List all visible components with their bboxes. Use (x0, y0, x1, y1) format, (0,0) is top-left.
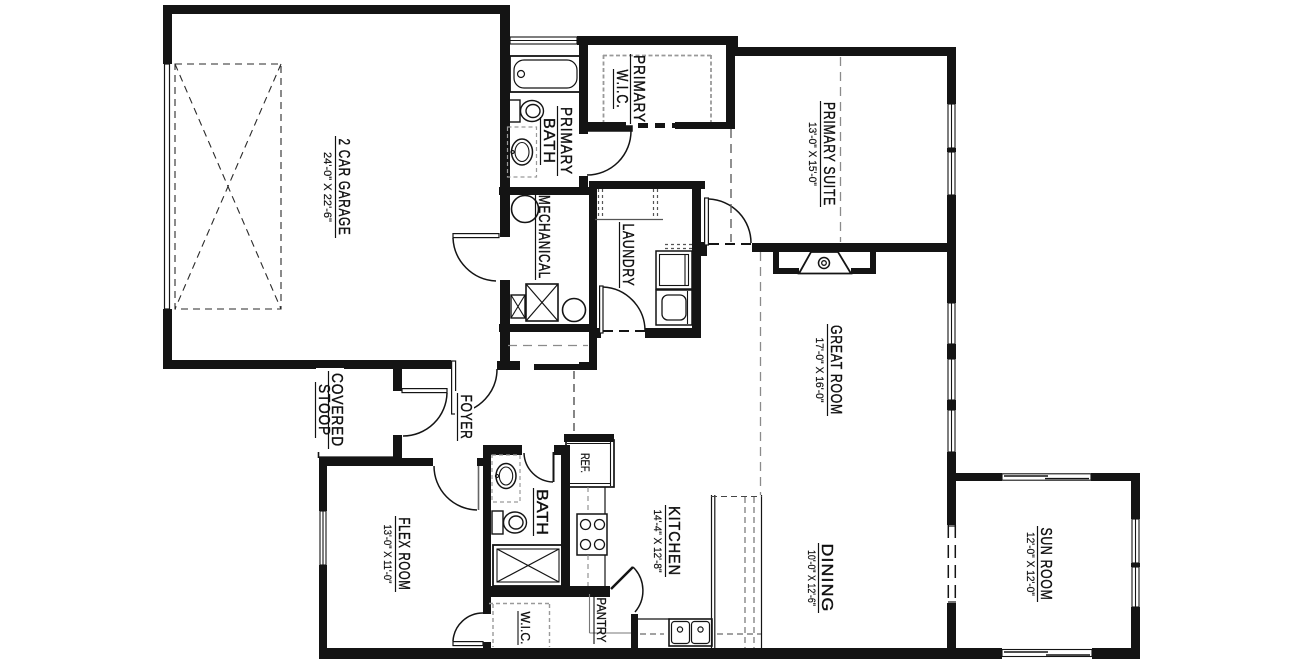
svg-text:2 CAR GARAGE: 2 CAR GARAGE (335, 139, 352, 236)
svg-text:BATH: BATH (540, 118, 557, 164)
svg-text:14'-4" X 12'-8": 14'-4" X 12'-8" (651, 510, 663, 573)
svg-text:W.I.C.: W.I.C. (518, 612, 532, 645)
svg-text:GREAT ROOM: GREAT ROOM (827, 325, 844, 415)
svg-text:PANTRY: PANTRY (594, 598, 609, 643)
svg-text:FLEX ROOM: FLEX ROOM (395, 518, 412, 591)
svg-text:17'-0" X 16'-0": 17'-0" X 16'-0" (813, 338, 825, 403)
svg-text:SUN ROOM: SUN ROOM (1037, 528, 1054, 601)
svg-text:PRIMARY: PRIMARY (557, 107, 574, 175)
svg-text:13'-0" X 15'-0": 13'-0" X 15'-0" (806, 122, 818, 186)
svg-text:12'-0" X 12'-0": 12'-0" X 12'-0" (1024, 532, 1036, 596)
svg-text:KITCHEN: KITCHEN (665, 506, 682, 576)
svg-text:DINING: DINING (818, 544, 835, 613)
svg-text:STOOP: STOOP (315, 384, 332, 436)
svg-text:FOYER: FOYER (457, 395, 474, 440)
svg-text:10'-0" X 12'-6": 10'-0" X 12'-6" (805, 550, 817, 606)
svg-text:W.I.C.: W.I.C. (613, 70, 630, 109)
svg-text:MECHANICAL: MECHANICAL (535, 195, 552, 279)
svg-text:PRIMARY: PRIMARY (630, 55, 647, 123)
svg-text:REF.: REF. (578, 453, 590, 473)
svg-text:24'-0" X 22'-6": 24'-0" X 22'-6" (321, 152, 333, 222)
svg-text:13'-0" X 11'-0": 13'-0" X 11'-0" (381, 525, 393, 584)
svg-text:BATH: BATH (533, 489, 550, 535)
svg-text:PRIMARY SUITE: PRIMARY SUITE (820, 102, 837, 206)
svg-text:LAUNDRY: LAUNDRY (619, 224, 636, 287)
